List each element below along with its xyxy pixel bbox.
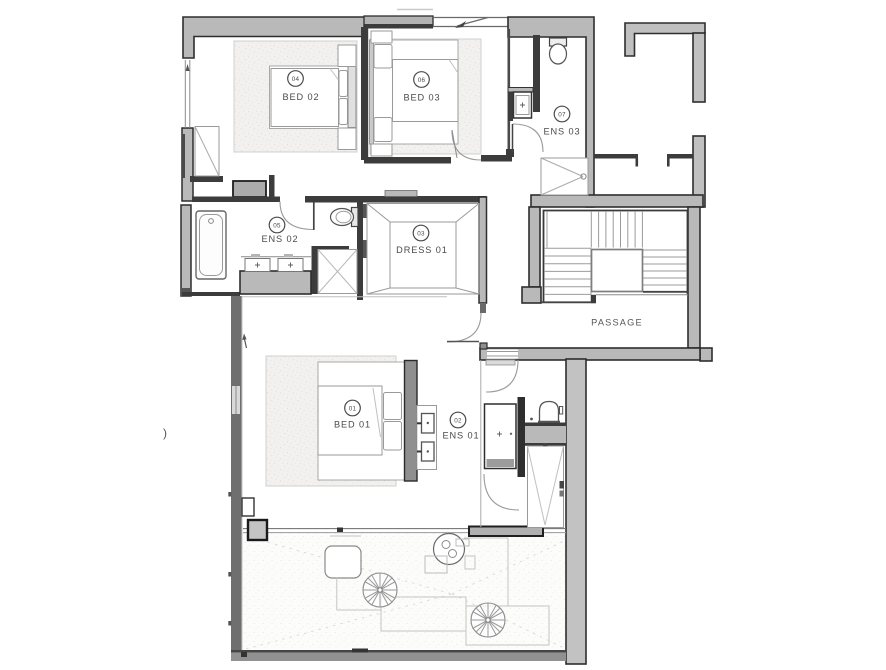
- svg-text:ENS 03: ENS 03: [543, 127, 580, 137]
- svg-text:02: 02: [454, 417, 462, 424]
- svg-text:BED 01: BED 01: [334, 420, 371, 430]
- svg-text:DRESS 01: DRESS 01: [396, 245, 448, 255]
- svg-text:ENS 01: ENS 01: [442, 431, 479, 441]
- svg-text:BED 02: BED 02: [282, 92, 319, 102]
- svg-text:01: 01: [349, 405, 357, 412]
- svg-text:): ): [163, 426, 167, 440]
- svg-text:03: 03: [417, 230, 425, 237]
- svg-text:PASSAGE: PASSAGE: [591, 318, 643, 328]
- svg-text:07: 07: [558, 111, 566, 118]
- svg-text:06: 06: [418, 77, 426, 84]
- svg-text:05: 05: [273, 222, 281, 229]
- svg-text:04: 04: [292, 76, 300, 83]
- svg-text:BED 03: BED 03: [403, 93, 440, 103]
- svg-text:ENS 02: ENS 02: [261, 234, 298, 244]
